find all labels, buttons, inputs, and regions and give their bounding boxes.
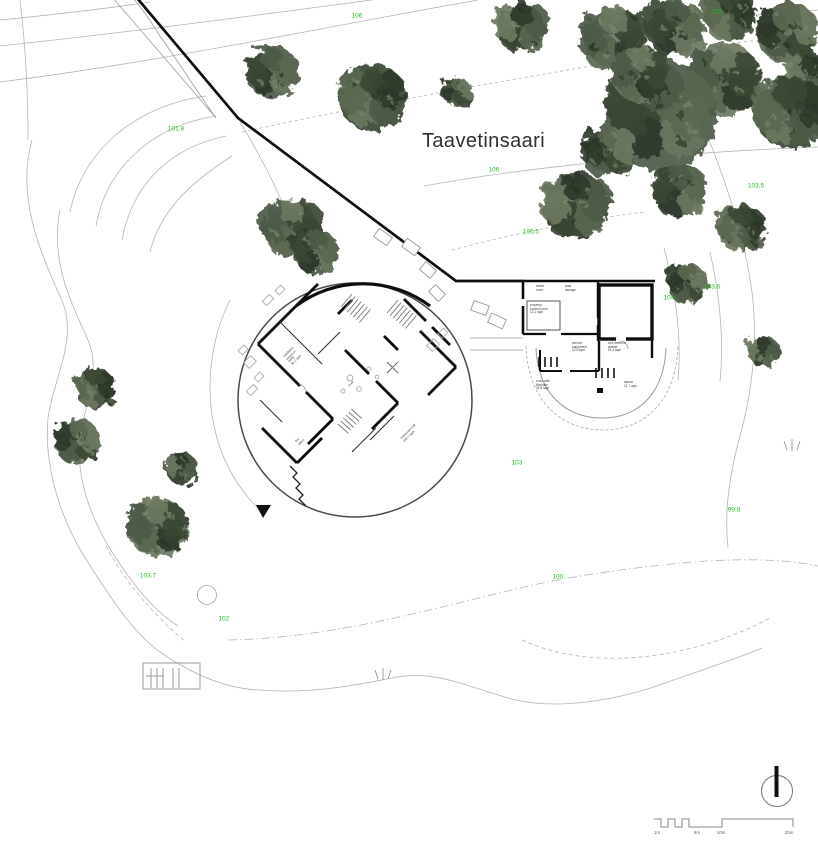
terrace-door — [597, 388, 603, 393]
room-label-fireplace-room: room with fireplace 31.8 sqm — [536, 380, 562, 391]
room-label-control-room: property control room 12.1 sqm — [530, 304, 556, 315]
tree — [166, 453, 198, 485]
elevation-label: 100 — [553, 574, 564, 581]
elevation-label: 99.8 — [728, 507, 741, 514]
north-arrow-icon — [762, 766, 793, 807]
tree — [540, 172, 610, 239]
elevation-label: 106 — [352, 13, 363, 20]
tree — [246, 46, 299, 99]
building-link — [470, 338, 523, 350]
tree — [746, 336, 779, 366]
scale-bar — [654, 819, 793, 827]
tree — [127, 497, 187, 557]
service-building-walls — [523, 281, 655, 371]
room-label-shelter: civil defence shelter 51.3 sqm — [608, 342, 634, 353]
tree — [73, 368, 115, 409]
scale-tick-20m: 20m — [785, 830, 794, 835]
site-plan-canvas — [0, 0, 818, 843]
scale-tick-1m: 1m — [654, 830, 660, 835]
elevation-label: 103.7 — [140, 573, 156, 580]
entrance-arrow — [256, 505, 271, 518]
tree — [54, 418, 100, 464]
elevation-label: 105.5 — [523, 229, 539, 236]
tree — [493, 1, 548, 51]
scale-tick-5m: 5m — [694, 830, 700, 835]
room-label-sauna: sauna 21.7 sqm — [624, 381, 650, 388]
tree — [652, 164, 707, 217]
room-label-boat-storage: boat storage — [565, 285, 591, 292]
room-label-locker: locker room — [536, 285, 562, 292]
tree — [440, 78, 472, 107]
elevation-label: 104 — [664, 295, 675, 302]
elevation-label: 103.5 — [748, 183, 764, 190]
tree — [580, 126, 635, 177]
boat-dock — [143, 663, 200, 689]
tree — [291, 229, 338, 274]
elevation-label: 103.6 — [704, 284, 720, 291]
elevation-label: 102 — [219, 616, 230, 623]
site-plan: Taavetinsaari 106103101.8106105.5103.510… — [0, 0, 818, 843]
elevation-label: 103 — [712, 9, 723, 16]
tree — [338, 63, 406, 131]
round-building — [238, 283, 472, 518]
elevation-label: 106 — [489, 167, 500, 174]
tree — [715, 204, 766, 251]
service-steps-b — [539, 357, 557, 367]
scale-tick-10m: 10m — [717, 830, 726, 835]
room-label-service-equipment: service equipment 11.5 sqm — [572, 342, 598, 353]
tree — [751, 76, 818, 148]
elevation-label: 101.8 — [168, 126, 184, 133]
tree — [701, 0, 756, 40]
site-title: Taavetinsaari — [422, 130, 545, 153]
elevation-label: 103 — [512, 460, 523, 467]
